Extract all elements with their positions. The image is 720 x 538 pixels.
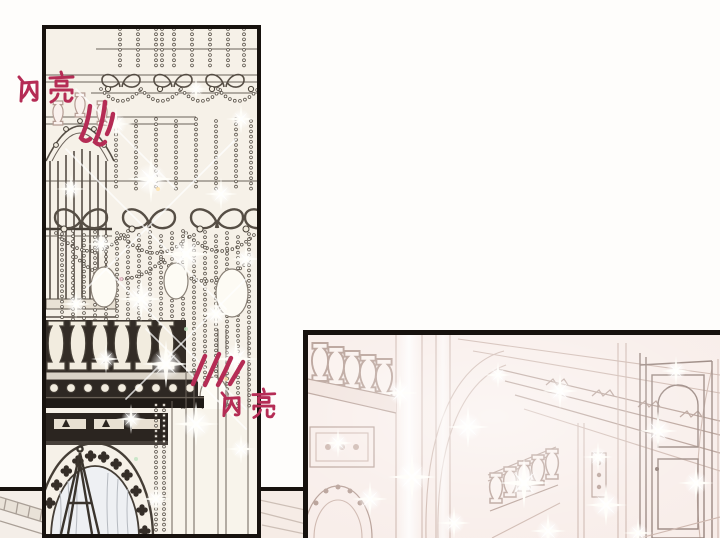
ledge-middle: [255, 491, 310, 538]
comic-page: 闪亮 闪亮: [0, 0, 720, 538]
carved-panel-drawing: [46, 413, 168, 445]
panel-crystal-chandelier: [42, 25, 261, 538]
palace-hall-drawing: [308, 335, 720, 538]
chandelier-drawing: [46, 29, 257, 534]
annotation-text-mid-right: 闪亮: [0, 0, 1, 1]
panel-palace-hall: [303, 330, 720, 538]
annotation-text-top-left: 闪亮: [0, 0, 1, 1]
